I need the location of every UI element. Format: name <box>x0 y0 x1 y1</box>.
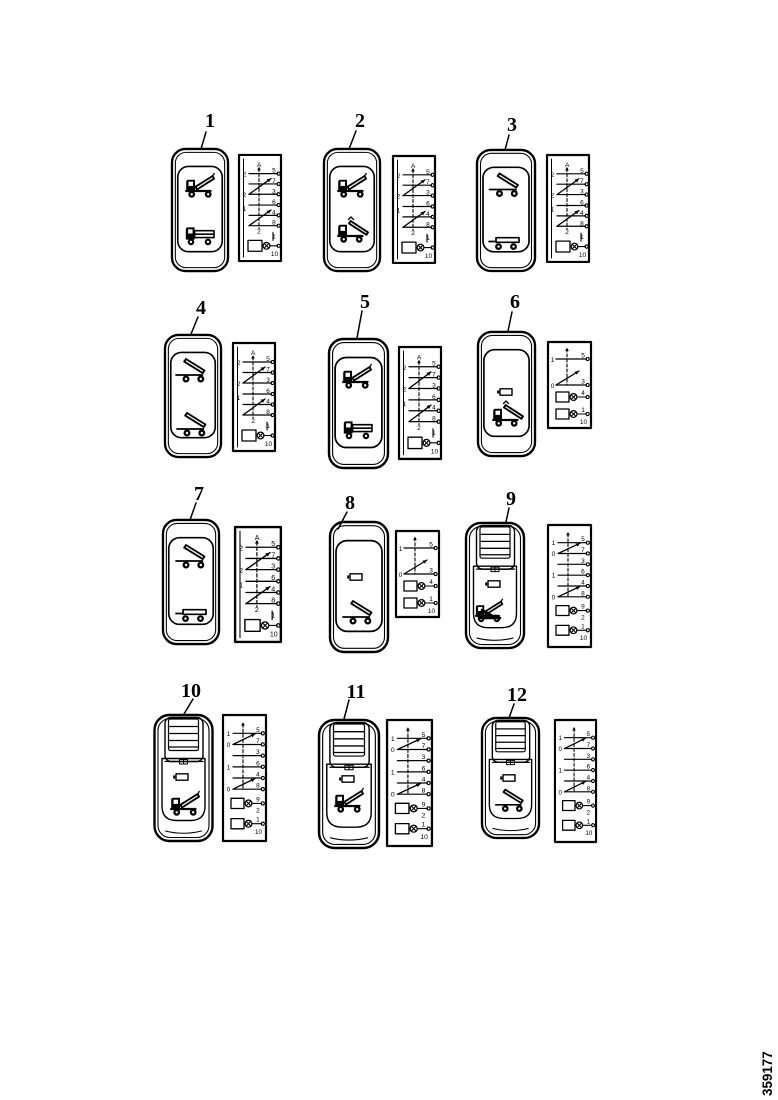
svg-text:1: 1 <box>205 110 215 132</box>
svg-text:5: 5 <box>360 291 370 313</box>
svg-text:12: 12 <box>507 684 527 706</box>
svg-text:359177: 359177 <box>760 1051 775 1096</box>
svg-text:3: 3 <box>507 114 517 136</box>
svg-text:7: 7 <box>194 483 204 505</box>
svg-text:10: 10 <box>181 680 201 702</box>
svg-text:9: 9 <box>506 488 516 510</box>
svg-text:6: 6 <box>510 291 520 313</box>
svg-text:4: 4 <box>196 297 206 319</box>
svg-text:2: 2 <box>355 110 365 132</box>
svg-text:8: 8 <box>345 492 355 514</box>
